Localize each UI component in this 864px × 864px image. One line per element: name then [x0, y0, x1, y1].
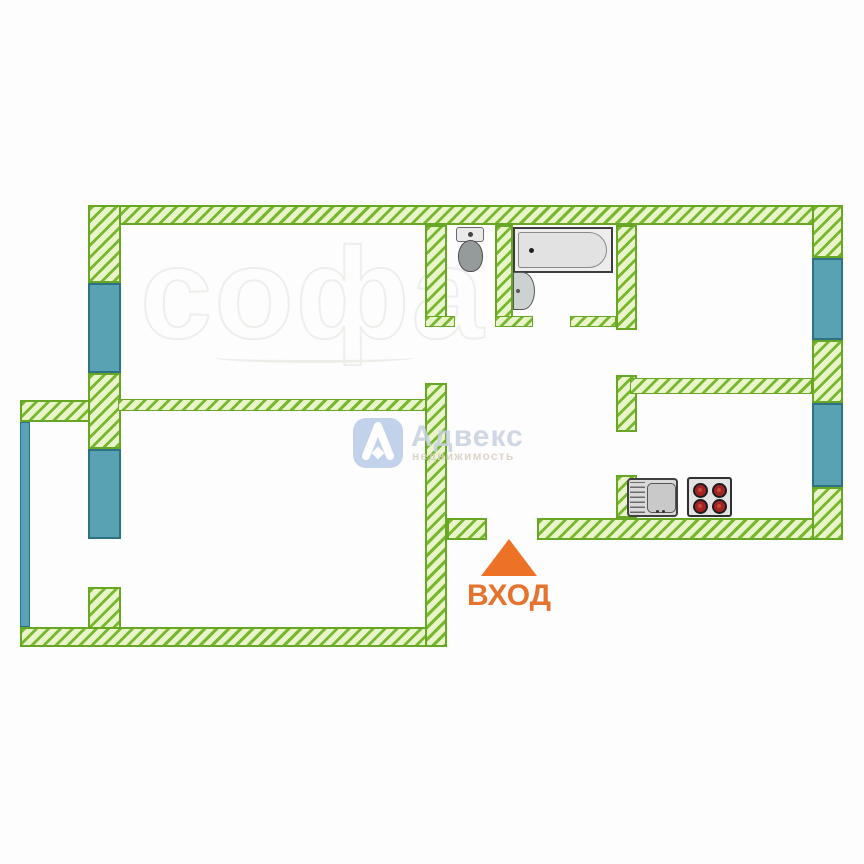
wall-right-mid	[812, 340, 843, 403]
stove-burner	[693, 483, 708, 498]
kitchen-sink-faucet-dot	[662, 510, 665, 513]
wall-balcony-top	[20, 400, 90, 422]
wall-bath-south-stub-right	[570, 316, 616, 327]
wall-wc-south-stub	[425, 316, 455, 327]
kitchen-sink-drainboard	[630, 482, 645, 513]
adveks-lambda-logo-icon	[353, 418, 403, 468]
wall-right-bottom	[812, 487, 843, 540]
toilet-tank-button	[468, 232, 473, 237]
window-left-lower	[88, 449, 121, 539]
window-right-upper	[812, 258, 843, 340]
wall-room-divider	[118, 399, 428, 411]
wall-south-right	[537, 518, 843, 540]
brand-watermark: Адвекс недвижимость	[353, 418, 613, 470]
bathtub-drain	[529, 248, 534, 253]
balcony-glazing	[20, 422, 30, 627]
stove-burner	[712, 483, 727, 498]
wall-top	[88, 205, 843, 225]
wall-right-top	[812, 205, 843, 258]
stove-burner	[693, 499, 708, 514]
background-watermark-swoosh	[214, 352, 414, 363]
sink-icon	[513, 272, 535, 310]
kitchen-sink-icon	[627, 478, 678, 517]
wall-left-top	[88, 205, 121, 283]
wall-entry-left-stub	[447, 518, 487, 540]
window-left-upper	[88, 283, 121, 373]
wall-kitchen-top	[630, 378, 812, 394]
entrance-arrow-icon	[481, 539, 537, 576]
toilet-icon	[458, 240, 483, 272]
stove-4-burner-icon	[687, 477, 732, 517]
kitchen-sink-bowl	[647, 483, 676, 513]
floor-plan: софа	[0, 0, 864, 864]
stove-burner	[712, 499, 727, 514]
wall-left-pier	[88, 373, 121, 449]
bathtub-icon	[513, 227, 613, 273]
brand-watermark-subtitle: недвижимость	[412, 449, 514, 463]
wall-bath-south-stub-left	[495, 316, 533, 327]
wall-east-upper	[616, 225, 637, 330]
entrance-label: ВХОД	[449, 579, 569, 613]
wall-wc-bath-divider	[495, 225, 513, 327]
wall-center-upper	[425, 225, 447, 327]
sink-faucet	[516, 289, 520, 293]
window-right-lower	[812, 403, 843, 487]
wall-bottom	[20, 627, 447, 647]
kitchen-sink-faucet-dot	[656, 510, 659, 513]
